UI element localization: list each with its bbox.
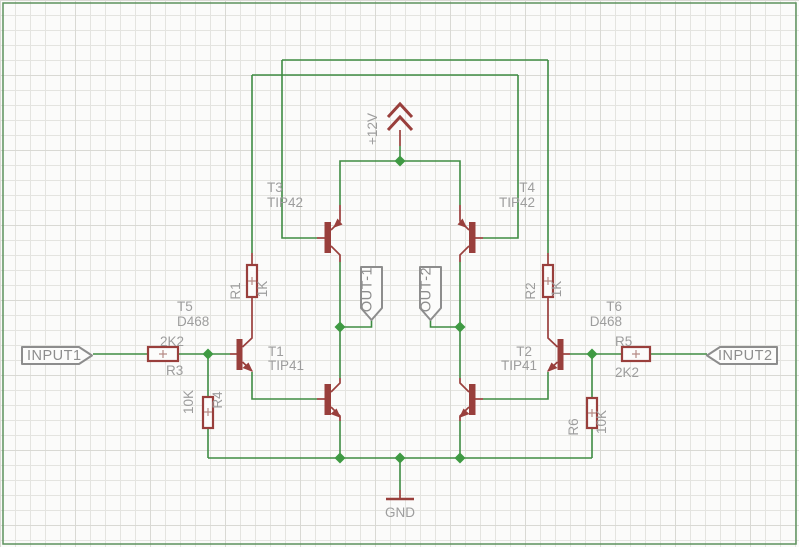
r3-value-label: 2K2 <box>160 334 184 349</box>
transistor-t5[interactable]: T5 D468 <box>177 297 253 372</box>
resistor-r4[interactable]: 10K R4 <box>181 390 225 428</box>
t1-value-label: TIP41 <box>268 358 304 373</box>
t3-value-label: TIP42 <box>267 195 303 210</box>
resistor-r6[interactable]: R6 10K <box>566 398 609 436</box>
port-out1[interactable]: OUT-1 <box>360 267 383 320</box>
t2-value-label: TIP41 <box>501 358 537 373</box>
out1-label: OUT-1 <box>360 267 376 312</box>
r4-value-label: 10K <box>181 390 196 414</box>
port-out2[interactable]: OUT-2 <box>419 267 442 320</box>
input1-label: INPUT1 <box>27 348 82 364</box>
out2-label: OUT-2 <box>419 267 435 312</box>
port-input2[interactable]: INPUT2 <box>707 347 777 364</box>
port-input1[interactable]: INPUT1 <box>22 347 92 364</box>
r1-ref-label: R1 <box>228 282 243 299</box>
schematic-canvas: +12V GND T3 TIP42 T4 TIP42 T1 TIP41 <box>0 0 799 547</box>
junction-dots <box>203 156 598 464</box>
resistor-r5[interactable]: R5 2K2 <box>615 334 650 380</box>
vcc-label: +12V <box>365 113 380 145</box>
t2-ref-label: T2 <box>516 344 532 359</box>
t1-ref-label: T1 <box>268 344 284 359</box>
transistor-t4[interactable]: T4 TIP42 <box>458 180 536 262</box>
r6-value-label: 10K <box>594 410 609 434</box>
input2-label: INPUT2 <box>718 348 773 364</box>
resistor-r3[interactable]: 2K2 R3 <box>148 334 184 378</box>
r6-ref-label: R6 <box>566 418 581 435</box>
gnd-label: GND <box>385 505 415 520</box>
r4-ref-label: R4 <box>210 391 225 409</box>
r2-ref-label: R2 <box>523 282 538 299</box>
resistor-r1[interactable]: R1 1K <box>228 253 270 300</box>
r3-ref-label: R3 <box>166 363 183 378</box>
r5-value-label: 2K2 <box>615 365 639 380</box>
t5-value-label: D468 <box>177 314 209 329</box>
transistor-t2[interactable]: T2 TIP41 <box>459 344 537 421</box>
transistor-t6[interactable]: T6 D468 <box>547 297 622 372</box>
gnd-symbol[interactable]: GND <box>385 490 415 520</box>
resistor-r2[interactable]: R2 1K <box>523 253 564 300</box>
t6-ref-label: T6 <box>606 299 622 314</box>
vcc-supply-symbol[interactable]: +12V <box>365 104 412 146</box>
transistor-t3[interactable]: T3 TIP42 <box>267 180 343 262</box>
t4-value-label: TIP42 <box>499 195 535 210</box>
r1-value-label: 1K <box>255 281 270 298</box>
r5-ref-label: R5 <box>615 334 632 349</box>
t6-value-label: D468 <box>590 314 622 329</box>
t4-ref-label: T4 <box>519 180 535 195</box>
r2-value-label: 1K <box>549 281 564 298</box>
net-wires[interactable] <box>93 60 707 490</box>
transistor-t1[interactable]: T1 TIP41 <box>268 344 341 421</box>
t3-ref-label: T3 <box>267 180 283 195</box>
t5-ref-label: T5 <box>177 299 193 314</box>
